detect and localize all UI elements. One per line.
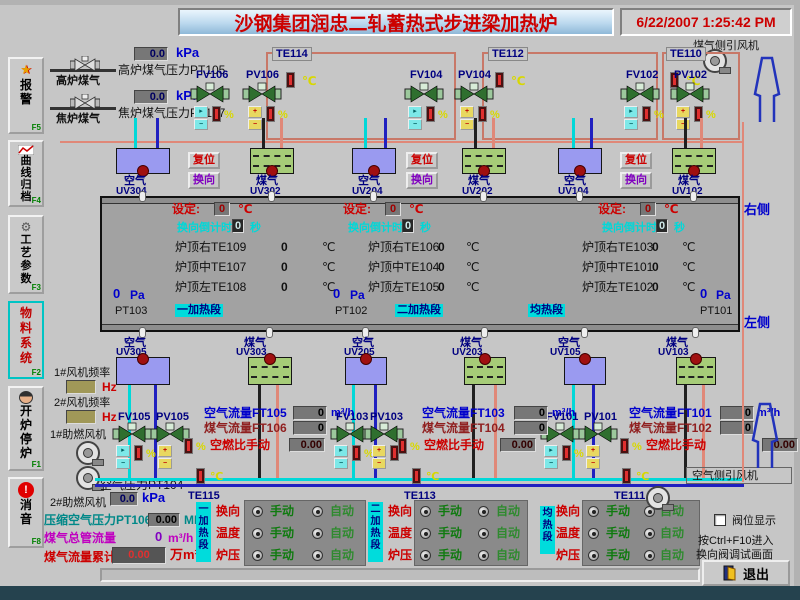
comp-air-pressure-display: 0.00 (148, 513, 180, 527)
countdown-display: 0 (656, 219, 668, 233)
seconds-unit: 秒 (250, 221, 261, 235)
auto-label: 自动 (496, 504, 520, 518)
auto-radio[interactable] (478, 506, 489, 517)
deg-unit: ℃ (210, 470, 223, 484)
gas-flow-total-label: 煤气流量累计 (44, 550, 116, 564)
gas-reversing-valve[interactable] (462, 148, 506, 174)
deg-unit: ℃ (238, 202, 253, 216)
gas-flow-label: 煤气流量FT102 (629, 421, 712, 435)
sidebar-item-furnace-start-stop[interactable]: 开炉停炉 F1 (8, 386, 44, 471)
reset-button[interactable]: 复位 (620, 152, 652, 169)
valve-indicator (562, 445, 571, 461)
valve-button-stack: ▸− (408, 106, 422, 130)
burner-nozzle (139, 191, 146, 202)
manual-radio[interactable] (420, 528, 431, 539)
pt-tag: PT101 (700, 304, 732, 318)
pct-unit: % (438, 108, 448, 122)
fan1-freq-display (66, 380, 96, 394)
fv-tag: FV104 (410, 68, 442, 82)
bf-gas-pressure-unit: kPa (176, 46, 199, 60)
roof-temp-value: 0 (438, 240, 445, 254)
air-flow-display: 0 (514, 406, 548, 420)
manual-label: 手动 (438, 504, 462, 518)
valve-state-dot (360, 353, 372, 365)
deg-unit: ℃ (682, 260, 695, 274)
roof-temp-value: 0 (438, 280, 445, 294)
flue-pipe (742, 122, 744, 482)
auto-radio[interactable] (478, 550, 489, 561)
valve-open-button[interactable]: ▸ (116, 445, 130, 457)
flow-unit: m³/h (331, 406, 354, 420)
flow-unit: m³/h (552, 406, 575, 420)
section-name-badge: 一加热段 (175, 304, 223, 317)
gas-flow-total-unit: 万m³ (170, 548, 199, 562)
air-reversing-valve[interactable] (345, 357, 387, 385)
valve-indicator (352, 445, 361, 461)
left-side-label: 左侧 (744, 316, 770, 330)
ratio-indicator (184, 438, 193, 454)
control-row-label: 炉压 (388, 548, 412, 562)
bottom-frame-strip (0, 586, 800, 600)
sidebar-item-label: 物料系统 (19, 306, 34, 366)
air-fuel-ratio-label: 空燃比手动 (424, 438, 484, 452)
valve-state-dot (264, 353, 276, 365)
air-reversing-valve[interactable] (352, 148, 396, 174)
manual-label: 手动 (270, 526, 294, 540)
reverse-countdown-label: 换向倒计时 (348, 221, 403, 235)
gas-reversing-valve[interactable] (248, 357, 292, 385)
auto-radio[interactable] (312, 528, 323, 539)
manual-label: 手动 (606, 548, 630, 562)
exit-button[interactable]: 退出 (702, 560, 790, 586)
fan1-freq-label: 1#风机频率 (54, 366, 110, 380)
valve-icon[interactable] (670, 82, 710, 104)
te-tag: TE115 (188, 489, 220, 503)
roof-temp-label: 炉顶右TE106 (368, 240, 439, 254)
gas-reversing-valve[interactable] (672, 148, 716, 174)
reverse-button[interactable]: 换向 (406, 172, 438, 189)
air-pipe (590, 118, 593, 148)
valve-close-button[interactable]: − (586, 458, 600, 470)
valve-icon[interactable] (190, 82, 230, 104)
valve-button-stack: ▸− (334, 445, 348, 469)
valve-open-button[interactable]: ▸ (408, 106, 422, 118)
comp-air-pressure-label: 压缩空气压力PT106 (44, 513, 151, 527)
sidebar-item-key: F4 (32, 196, 41, 205)
co-gas-valve-icon (70, 94, 100, 112)
air-fuel-ratio-label: 空燃比手动 (210, 438, 270, 452)
manual-radio[interactable] (588, 506, 599, 517)
valve-state-dot (137, 353, 149, 365)
valve-close-button[interactable]: − (248, 119, 262, 131)
right-frame-strip (794, 0, 800, 600)
sidebar-item-alarm[interactable]: ★ 报警 F5 (8, 57, 44, 134)
manual-label: 手动 (270, 504, 294, 518)
burner-nozzle (690, 191, 697, 202)
deg-unit: ℃ (466, 280, 479, 294)
bf-gas-pipe-label: 高炉煤气 (56, 74, 100, 88)
setpoint-label: 设定: (172, 202, 200, 216)
burner-nozzle (481, 327, 488, 338)
manual-label: 手动 (270, 548, 294, 562)
manual-label: 手动 (606, 504, 630, 518)
seconds-unit: 秒 (674, 221, 685, 235)
valve-open-button[interactable]: + (248, 106, 262, 118)
deg-unit: ℃ (664, 202, 679, 216)
pa-unit: Pa (130, 288, 145, 302)
reset-button[interactable]: 复位 (406, 152, 438, 169)
auto-radio[interactable] (312, 506, 323, 517)
roof-temp-label: 炉顶左TE105 (368, 280, 439, 294)
manual-radio[interactable] (420, 550, 431, 561)
bf-gas-pressure-display: 0.0 (134, 47, 168, 61)
air-pipe (364, 118, 367, 148)
zone-pressure-value: 0 (113, 287, 120, 301)
auto-radio[interactable] (644, 528, 655, 539)
gas-main-flow-value: 0 (155, 530, 162, 544)
right-side-label: 右侧 (744, 203, 770, 217)
manual-radio[interactable] (420, 506, 431, 517)
fan1-label: 1#助燃风机 (50, 428, 106, 442)
control-row-label: 换向 (388, 504, 412, 518)
air-pipe (572, 118, 575, 148)
deg-unit: ℃ (682, 280, 695, 294)
valve-indicator (426, 106, 435, 122)
valve-close-button[interactable]: − (334, 458, 348, 470)
roof-temp-value: 0 (281, 260, 288, 274)
auto-label: 自动 (330, 548, 354, 562)
ratio-indicator (620, 438, 629, 454)
pct-unit: % (574, 447, 584, 461)
valve-close-button[interactable]: − (624, 119, 638, 131)
reverse-countdown-label: 换向倒计时 (602, 221, 657, 235)
furnace-floor-bar (102, 324, 738, 330)
setpoint-display[interactable]: 0 (214, 202, 230, 216)
manual-radio[interactable] (588, 528, 599, 539)
control-row-label: 换向 (216, 504, 240, 518)
pct-unit: % (146, 447, 156, 461)
valve-icon[interactable] (620, 82, 660, 104)
roof-temp-label: 炉顶左TE108 (175, 280, 246, 294)
air-reversing-valve[interactable] (116, 357, 170, 385)
gas-flow-display: 0 (514, 421, 548, 435)
roof-temp-value: 0 (281, 240, 288, 254)
pct-unit: % (196, 440, 206, 454)
air-reversing-valve[interactable] (558, 148, 602, 174)
status-strip (100, 568, 700, 582)
valve-indicator (212, 106, 221, 122)
roof-temp-label: 炉顶右TE109 (175, 240, 246, 254)
operator-face-icon (19, 391, 33, 404)
pct-unit: % (632, 440, 642, 454)
valve-state-dot (690, 353, 702, 365)
deg-unit: ℃ (302, 74, 317, 88)
deg-unit: ℃ (322, 260, 335, 274)
roof-temp-value: 0 (652, 280, 659, 294)
air-reversing-valve[interactable] (116, 148, 170, 174)
pa-unit: Pa (716, 288, 731, 302)
sidebar-item-key: F1 (32, 460, 41, 469)
section-tab: 均热段 (540, 506, 555, 554)
roof-temp-value: 0 (438, 260, 445, 274)
air-side-fan-label: 空气侧引风机 (692, 469, 758, 483)
bf-gas-valve-icon (70, 56, 100, 74)
manual-label: 手动 (438, 548, 462, 562)
auto-label: 自动 (496, 548, 520, 562)
valve-icon[interactable] (242, 82, 282, 104)
alarm-icon: ★ (20, 62, 32, 78)
valve-button-stack: +− (158, 445, 172, 469)
deg-unit: ℃ (466, 240, 479, 254)
sidebar-item-curves[interactable]: 曲线归档 F4 (8, 140, 44, 207)
pct-unit: % (706, 108, 716, 122)
air-pipe (384, 118, 387, 148)
sidebar-item-key: F2 (32, 368, 41, 377)
chimney-icon (748, 402, 782, 468)
ratio-indicator (398, 438, 407, 454)
pv-tag: PV102 (674, 68, 707, 82)
valve-close-button[interactable]: − (544, 458, 558, 470)
gas-pipe (474, 118, 477, 148)
valve-indicator (478, 106, 487, 122)
countdown-display: 0 (232, 219, 244, 233)
valve-button-stack: ▸− (544, 445, 558, 469)
auto-label: 自动 (660, 548, 684, 562)
section-tab: 二加热段 (368, 502, 383, 562)
te-tag: TE110 (666, 47, 706, 61)
valve-open-button[interactable]: ▸ (624, 106, 638, 118)
thermometer-icon (622, 468, 631, 484)
curve-icon (18, 145, 34, 155)
thermometer-icon (412, 468, 421, 484)
setpoint-display[interactable]: 0 (640, 202, 656, 216)
section-name-badge: 均热段 (528, 304, 565, 317)
manual-radio[interactable] (252, 506, 263, 517)
valve-indicator (266, 106, 275, 122)
gas-flow-label: 煤气流量FT106 (204, 421, 287, 435)
roof-temp-value: 0 (652, 240, 659, 254)
page-title: 沙钢集团润忠二轧蓄热式步进梁加热炉 (234, 9, 557, 36)
auto-label: 自动 (330, 504, 354, 518)
roof-temp-label: 炉顶中TE107 (175, 260, 246, 274)
fv-tag: FV102 (626, 68, 658, 82)
valve-open-button[interactable]: + (158, 445, 172, 457)
reverse-countdown-label: 换向倒计时 (177, 221, 232, 235)
valve-position-checkbox[interactable] (714, 514, 726, 526)
deg-unit: ℃ (409, 202, 424, 216)
valve-close-button[interactable]: − (158, 458, 172, 470)
roof-temp-label: 炉顶中TE101 (582, 260, 653, 274)
control-row-label: 炉压 (556, 548, 580, 562)
valve-indicator (134, 445, 143, 461)
seconds-unit: 秒 (420, 221, 431, 235)
gas-pipe (684, 118, 687, 148)
valve-icon[interactable] (454, 82, 494, 104)
auto-radio[interactable] (644, 550, 655, 561)
valve-close-button[interactable]: − (194, 119, 208, 131)
hint-line1: 按Ctrl+F10进入 (698, 534, 774, 548)
deg-unit: ℃ (466, 260, 479, 274)
gas-pipe (280, 118, 283, 148)
exit-button-label: 退出 (743, 564, 769, 583)
pt-tag: PT102 (335, 304, 367, 318)
hz-unit: Hz (102, 410, 117, 424)
gas-reversing-valve[interactable] (464, 357, 506, 385)
reverse-button[interactable]: 换向 (188, 172, 220, 189)
burner-nozzle (692, 327, 699, 338)
valve-button-stack: +− (586, 445, 600, 469)
sidebar-item-label: 报警 (19, 78, 34, 106)
valve-button-stack: ▸− (116, 445, 130, 469)
valve-close-button[interactable]: − (116, 458, 130, 470)
gas-flow-total-display[interactable]: 0.00 (112, 547, 166, 564)
valve-open-button[interactable]: ▸ (194, 106, 208, 118)
burner-nozzle (581, 327, 588, 338)
valve-button-stack: +− (372, 445, 386, 469)
auto-radio[interactable] (312, 550, 323, 561)
roof-temp-label: 炉顶中TE104 (368, 260, 439, 274)
valve-position-checkbox-label: 阀位显示 (732, 514, 776, 528)
gas-reversing-valve[interactable] (676, 357, 716, 385)
hz-unit: Hz (102, 380, 117, 394)
fan2-label: 2#助燃风机 (50, 496, 106, 510)
valve-button-stack: +− (248, 106, 262, 130)
valve-open-button[interactable]: + (460, 106, 474, 118)
chimney-icon (750, 56, 784, 122)
valve-close-button[interactable]: − (460, 119, 474, 131)
air-flow-label: 空气流量FT101 (629, 406, 712, 420)
gas-pipe (262, 118, 265, 148)
auto-label: 自动 (330, 526, 354, 540)
gas-main-flow-unit: m³/h (168, 531, 193, 545)
sidebar-item-key: F8 (32, 537, 41, 546)
zone-pressure-value: 0 (700, 287, 707, 301)
fan2-freq-label: 2#风机频率 (54, 396, 110, 410)
section-name-badge: 二加热段 (395, 304, 443, 317)
te-tag: TE112 (488, 47, 528, 61)
valve-close-button[interactable]: − (372, 458, 386, 470)
valve-icon[interactable] (578, 422, 618, 444)
zone-pressure-value: 0 (333, 287, 340, 301)
thermometer-icon (196, 468, 205, 484)
gas-main-flow-label: 煤气总管流量 (44, 531, 116, 545)
countdown-display: 0 (402, 219, 414, 233)
auto-label: 自动 (660, 526, 684, 540)
valve-button-stack: ▸− (624, 106, 638, 130)
sidebar-item-material-system[interactable]: 物料系统 F2 (8, 301, 44, 379)
valve-open-button[interactable]: + (586, 445, 600, 457)
roof-temp-label: 炉顶左TE102 (582, 280, 653, 294)
hmi-screen: { "header": { "title": "沙钢集团润忠二轧蓄热式步进梁加热… (0, 0, 800, 600)
valve-open-button[interactable]: + (372, 445, 386, 457)
air-fuel-ratio-display[interactable]: 0.00 (500, 438, 536, 452)
thermometer-icon (495, 72, 504, 88)
valve-close-button[interactable]: − (408, 119, 422, 131)
valve-icon[interactable] (112, 422, 152, 444)
control-row-label: 换向 (556, 504, 580, 518)
gear-icon: ⚙ (21, 220, 32, 234)
valve-icon[interactable] (404, 82, 444, 104)
roof-temp-value: 0 (652, 260, 659, 274)
burner-nozzle (266, 327, 273, 338)
exit-door-icon (723, 565, 737, 581)
manual-radio[interactable] (588, 550, 599, 561)
air-flow-display: 0 (293, 406, 327, 420)
manual-radio[interactable] (252, 528, 263, 539)
sidebar-item-label: 工艺参数 (19, 234, 34, 286)
reset-button[interactable]: 复位 (188, 152, 220, 169)
valve-open-button[interactable]: ▸ (334, 445, 348, 457)
valve-open-button[interactable]: ▸ (544, 445, 558, 457)
co-gas-pipe-label: 焦炉煤气 (56, 112, 100, 126)
sidebar-item-mute[interactable]: ! 消音 F8 (8, 477, 44, 548)
valve-state-dot (579, 353, 591, 365)
sidebar-item-key: F5 (32, 123, 41, 132)
sidebar-item-label: 消音 (19, 498, 34, 526)
air-pressure-display: 0.0 (110, 492, 138, 506)
pv-tag: PV106 (246, 68, 279, 82)
air-flow-label: 空气流量FT105 (204, 406, 287, 420)
gas-flow-label: 煤气流量FT104 (422, 421, 505, 435)
burner-nozzle (480, 191, 487, 202)
control-row-label: 温度 (216, 526, 240, 540)
valve-indicator (642, 106, 651, 122)
fv-tag: FV106 (196, 68, 228, 82)
control-row-label: 温度 (388, 526, 412, 540)
valve-open-button[interactable]: + (676, 106, 690, 118)
deg-unit: ℃ (426, 470, 439, 484)
manual-label: 手动 (606, 526, 630, 540)
valve-button-stack: +− (460, 106, 474, 130)
reverse-button[interactable]: 换向 (620, 172, 652, 189)
valve-state-dot (479, 353, 491, 365)
te-tag: TE114 (272, 47, 312, 61)
sidebar-item-process-params[interactable]: ⚙ 工艺参数 F3 (8, 215, 44, 294)
deg-unit: ℃ (682, 240, 695, 254)
setpoint-display[interactable]: 0 (385, 202, 401, 216)
pct-unit: % (410, 440, 420, 454)
auto-label: 自动 (496, 526, 520, 540)
sidebar-item-key: F3 (32, 283, 41, 292)
datetime-box: 6/22/2007 1:25:42 PM (620, 8, 792, 36)
mute-alarm-icon: ! (18, 482, 34, 498)
air-pipe (134, 118, 137, 148)
burner-nozzle (370, 191, 377, 202)
sidebar-item-label: 开炉停炉 (19, 404, 34, 460)
valve-button-stack: ▸− (194, 106, 208, 130)
control-row-label: 温度 (556, 526, 580, 540)
pt-tag: PT103 (115, 304, 147, 318)
air-pressure-unit: kPa (142, 491, 165, 505)
air-fuel-ratio-label: 空燃比手动 (646, 438, 706, 452)
roof-temp-value: 0 (281, 280, 288, 294)
gas-reversing-valve[interactable] (250, 148, 294, 174)
auto-radio[interactable] (478, 528, 489, 539)
burner-nozzle (268, 191, 275, 202)
burner-nozzle (576, 191, 583, 202)
deg-unit: ℃ (322, 240, 335, 254)
air-reversing-valve[interactable] (564, 357, 606, 385)
setpoint-label: 设定: (598, 202, 626, 216)
valve-close-button[interactable]: − (676, 119, 690, 131)
air-fuel-ratio-display[interactable]: 0.00 (289, 438, 325, 452)
manual-radio[interactable] (252, 550, 263, 561)
pa-unit: Pa (350, 288, 365, 302)
air-flow-label: 空气流量FT103 (422, 406, 505, 420)
gas-flow-display: 0 (293, 421, 327, 435)
gas-pipe (492, 118, 495, 148)
pct-unit: % (654, 108, 664, 122)
